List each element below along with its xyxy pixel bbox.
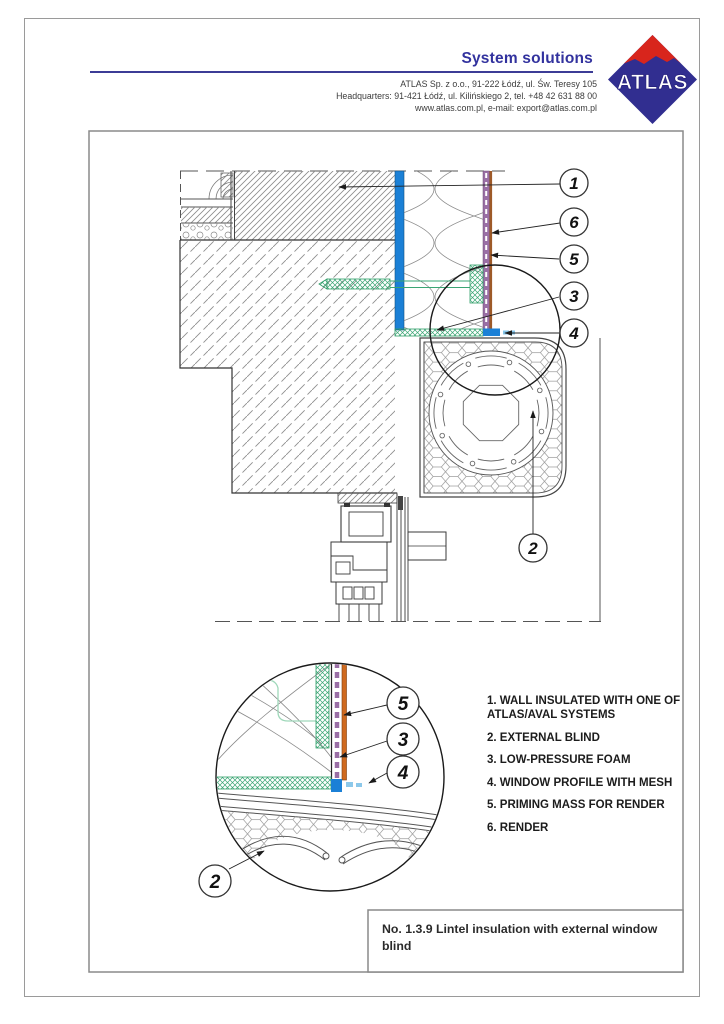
drawing-title: No. 1.3.9 Lintel insulation with externa… (382, 921, 682, 954)
callout-6: 6 (560, 208, 588, 236)
legend-item-1: 1. WALL INSULATED WITH ONE OF ATLAS/AVAL… (487, 694, 701, 723)
callout-2: 2 (519, 534, 547, 562)
legend-item-4: 4. WINDOW PROFILE WITH MESH (487, 776, 701, 790)
priming-layer (483, 171, 490, 332)
mesh-render-strip (395, 329, 483, 336)
adhesive-layer (395, 171, 404, 330)
header-rule (90, 71, 593, 73)
legend-item-6: 6. RENDER (487, 821, 701, 835)
page-title: System solutions (461, 50, 593, 68)
logo-text: ATLAS (617, 71, 688, 94)
address-line-2: Headquarters: 91-421 Łódź, ul. Kilińskie… (336, 91, 597, 101)
svg-text:5: 5 (398, 694, 409, 715)
callout-detail-5: 5 (387, 687, 419, 719)
blind-box (420, 338, 566, 497)
svg-text:3: 3 (569, 287, 579, 306)
svg-text:2: 2 (527, 539, 538, 558)
callout-1: 1 (560, 169, 588, 197)
priming-layer-detail (334, 660, 340, 780)
render-layer-detail (342, 660, 347, 780)
mesh-strip-detail (216, 777, 331, 789)
callout-4: 4 (560, 319, 588, 347)
callout-detail-4: 4 (387, 756, 419, 788)
svg-text:1: 1 (569, 174, 578, 193)
legend-item-5: 5. PRIMING MASS FOR RENDER (487, 798, 701, 812)
atlas-logo: ATLAS (604, 31, 701, 128)
svg-text:3: 3 (398, 730, 409, 751)
masonry-wall (180, 240, 397, 493)
window-profile-strip (483, 329, 515, 337)
svg-text:2: 2 (209, 872, 221, 893)
window-profile-detail (331, 779, 342, 792)
document-page: 1 6 5 3 4 2 5 3 4 2 System solutions (0, 0, 724, 1024)
callout-5: 5 (560, 245, 588, 273)
mineral-wool-insulation (404, 171, 483, 329)
svg-text:5: 5 (569, 250, 579, 269)
legend-item-3: 3. LOW-PRESSURE FOAM (487, 753, 701, 767)
floor-slab-detail (181, 173, 233, 240)
technical-drawing: 1 6 5 3 4 2 5 3 4 2 (0, 0, 724, 1024)
address-line-1: ATLAS Sp. z o.o., 91-222 Łódź, ul. Św. T… (400, 79, 597, 89)
callout-detail-2: 2 (199, 865, 231, 897)
render-layer (490, 171, 493, 332)
anchor-plate-detail (316, 662, 329, 748)
legend: 1. WALL INSULATED WITH ONE OF ATLAS/AVAL… (487, 694, 701, 843)
address-line-3: www.atlas.com.pl, e-mail: export@atlas.c… (415, 103, 597, 113)
callout-detail-3: 3 (387, 723, 419, 755)
svg-text:4: 4 (568, 324, 579, 343)
window-frame (331, 493, 446, 621)
legend-item-2: 2. EXTERNAL BLIND (487, 731, 701, 745)
svg-text:4: 4 (397, 763, 409, 784)
svg-text:6: 6 (569, 213, 579, 232)
callout-3: 3 (560, 282, 588, 310)
